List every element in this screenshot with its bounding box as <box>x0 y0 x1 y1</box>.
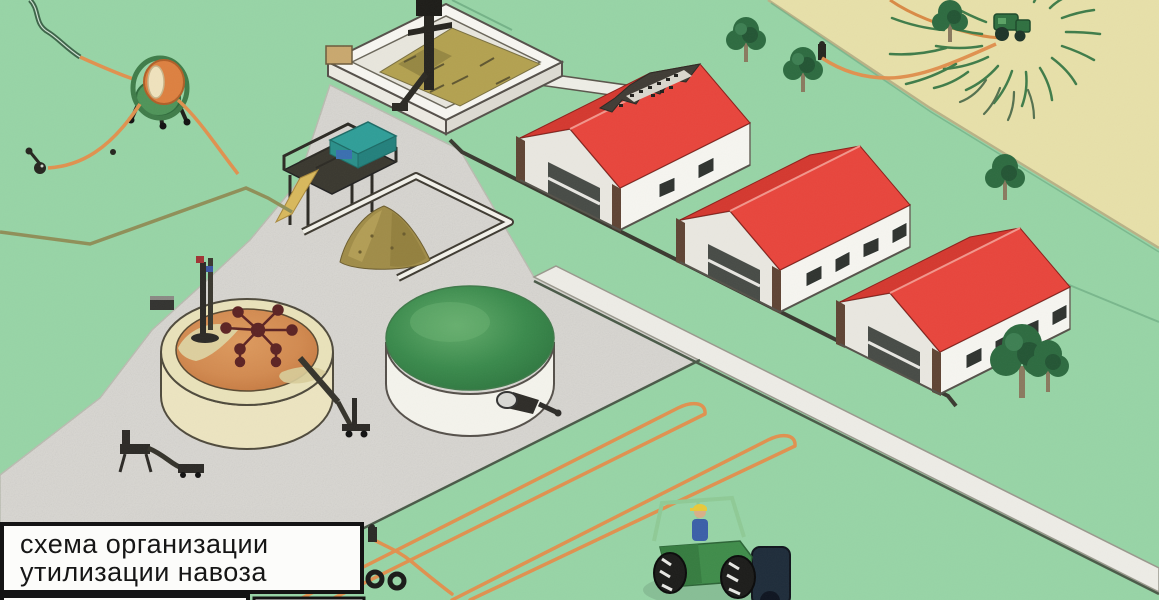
title-line-2: утилизации навоза <box>20 557 267 587</box>
title-line-1: схема организации <box>20 529 269 559</box>
film-grain <box>0 0 1159 600</box>
sec.ond-plate-partial <box>2 596 364 600</box>
title-plate: схема организации утилизации навоза <box>2 524 362 592</box>
scene-illustration: схема организации утилизации навоза <box>0 0 1159 600</box>
